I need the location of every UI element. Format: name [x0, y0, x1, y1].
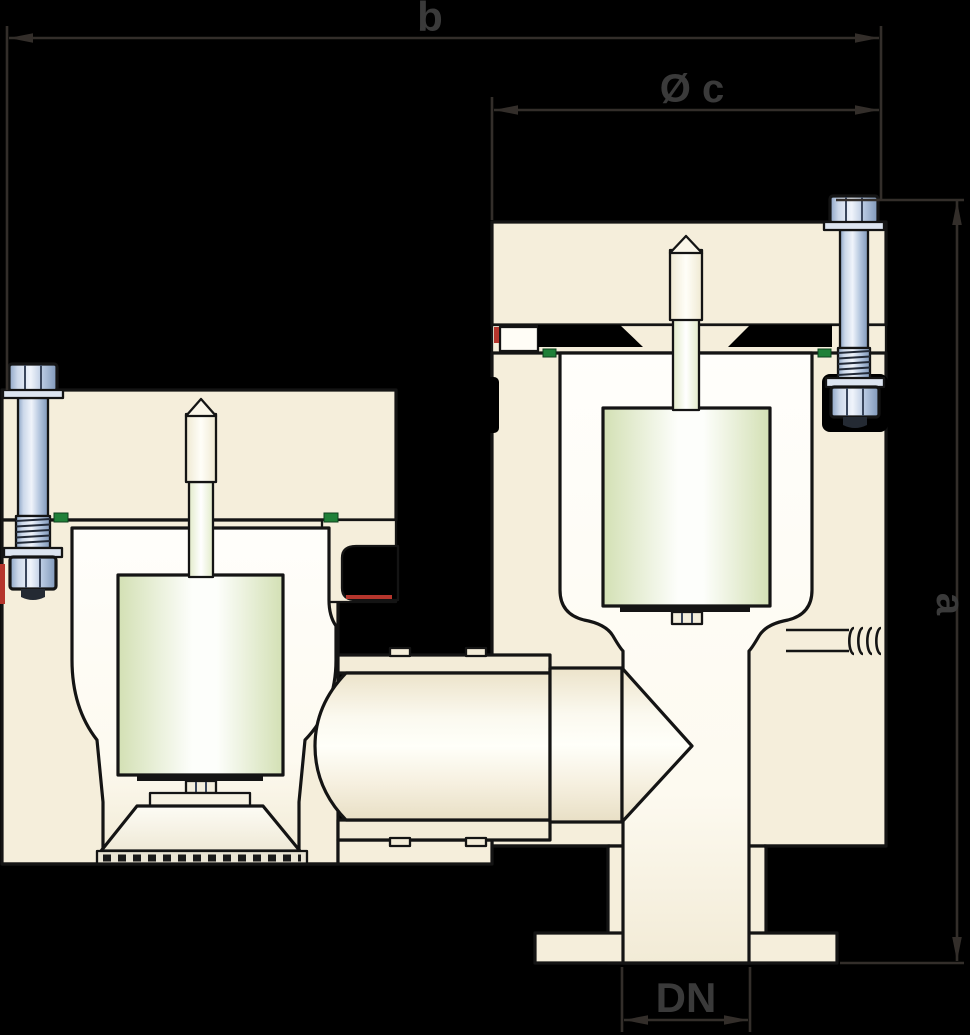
- pipe-bottom-flange-plate: [338, 820, 550, 840]
- valve-cross-section-diagram: b Ø c a DN: [0, 0, 970, 1035]
- bolt-hex-head: [9, 364, 57, 391]
- left-disc-holder: [150, 793, 250, 806]
- pipe-top-tab-left: [390, 648, 410, 656]
- bolt-hex-nut: [10, 557, 56, 589]
- right-stem-upper: [670, 250, 702, 320]
- pipe-barrel: [315, 673, 550, 820]
- right-gasket-seal-green-right: [818, 349, 831, 357]
- right-stem-lower: [673, 318, 699, 410]
- left-stem-upper: [186, 414, 216, 482]
- left-notch-seal-red: [346, 595, 392, 599]
- bolt-shaft: [18, 398, 48, 516]
- right-piston: [603, 408, 770, 606]
- right-gasket-slot: [500, 327, 538, 351]
- bolt-shaft: [840, 230, 868, 348]
- dimension-label-dn: DN: [656, 974, 717, 1021]
- left-bonnet-vent-notch: [342, 546, 398, 600]
- pipe-bottom-tab-left: [390, 838, 410, 846]
- bolt-hex-nut: [831, 387, 879, 417]
- dimension-label-b: b: [417, 0, 443, 40]
- left-stem-lower: [189, 482, 213, 577]
- body-cutout-right: [765, 846, 890, 938]
- right-stem-nut: [672, 612, 702, 624]
- right-body-notch: [485, 377, 499, 433]
- bolt-end-tip: [21, 589, 45, 600]
- pipe-bottom-tab-right: [466, 838, 486, 846]
- pipe-right-section: [550, 668, 622, 822]
- bolt-washer-top: [3, 390, 63, 398]
- left-piston: [118, 575, 283, 775]
- left-gasket-seal-green-right: [324, 513, 338, 522]
- dimension-label-a: a: [928, 593, 970, 616]
- pipe-top-flange-plate: [338, 655, 550, 673]
- pipe-top-tab-right: [466, 648, 486, 656]
- left-valve-disc: [101, 806, 300, 851]
- bolt-end-tip: [843, 417, 867, 428]
- body-cutout-left: [487, 846, 607, 938]
- bolt-washer-top: [824, 222, 884, 230]
- left-gasket-seal-green-left: [54, 513, 68, 522]
- right-safety-valve: [485, 196, 890, 963]
- valve-drawing-stage: b Ø c a DN: [0, 0, 970, 1035]
- left-stem-nut: [186, 781, 216, 793]
- right-gasket-seal-green-left: [543, 349, 556, 357]
- left-body-seal-red: [0, 564, 5, 604]
- right-cap-seal-red: [494, 327, 499, 343]
- dimension-label-c: Ø c: [660, 67, 724, 111]
